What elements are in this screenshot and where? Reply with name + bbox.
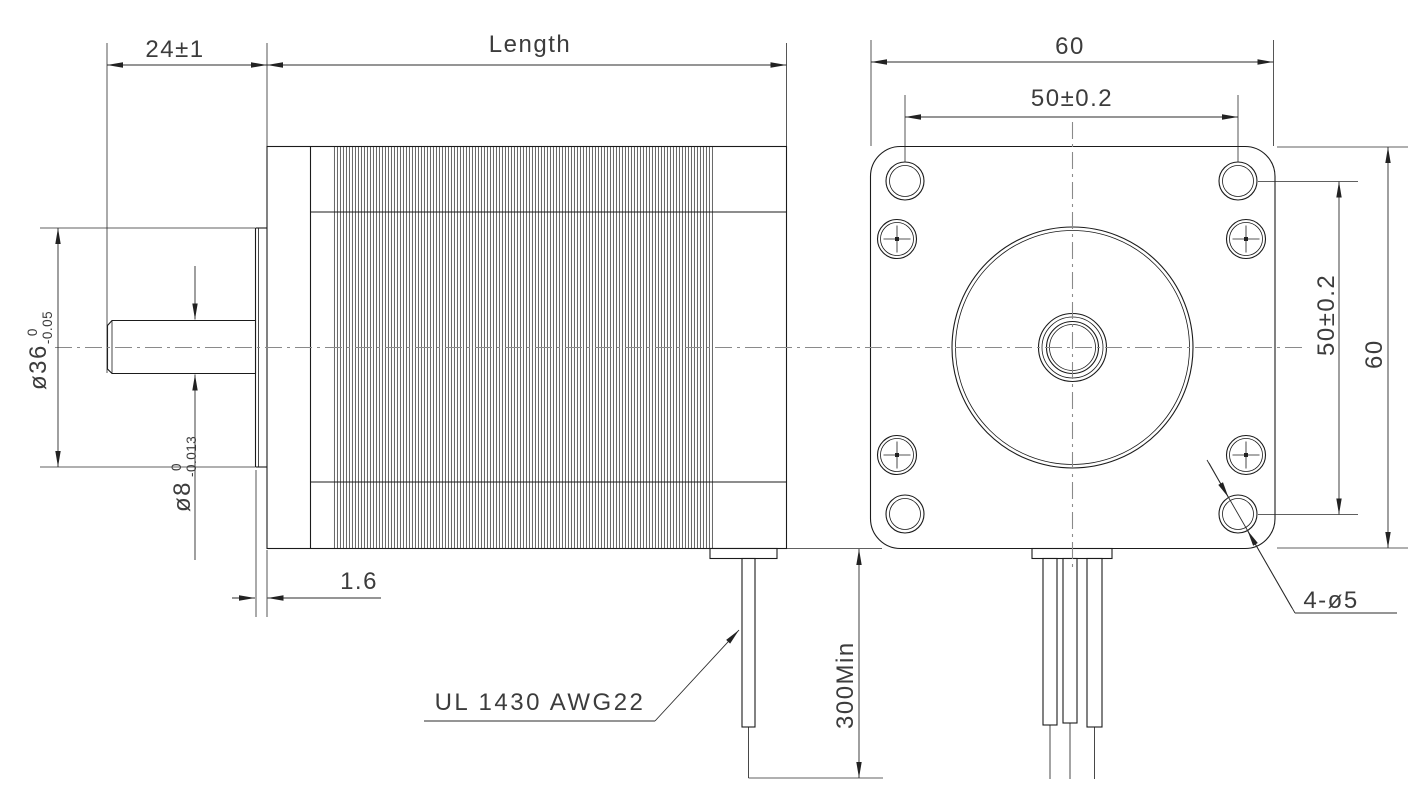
shaft-dia-nominal: ø8	[169, 481, 196, 512]
assembly-screw-top-right	[1227, 220, 1266, 259]
hole-callout-arrow-lower	[1248, 531, 1293, 609]
corner-hole-top-left	[886, 162, 924, 200]
assembly-screw-bottom-right	[1227, 436, 1266, 475]
cable-bushing-side	[710, 549, 777, 559]
side-view	[108, 147, 787, 779]
lead-wire-1	[1043, 559, 1057, 726]
label-height-right: 60	[1361, 339, 1388, 369]
label-hole-spacing-top: 50±0.2	[1031, 85, 1113, 112]
boss-dia-lower-tol: -0.05	[40, 311, 55, 344]
label-boss-depth: 1.6	[340, 568, 378, 595]
lead-wire-3	[1087, 559, 1102, 728]
label-shaft-diameter: ø80-0.013	[169, 436, 199, 512]
label-boss-diameter: ø360-0.05	[25, 311, 55, 390]
label-shaft-extension: 24±1	[145, 36, 204, 63]
label-wire-spec: UL 1430 AWG22	[435, 689, 646, 716]
motor-dimension-drawing: 24±1 Length ø360-0.05 ø80-0.013 1.6 UL 1…	[0, 0, 1421, 789]
lead-wire-side	[742, 559, 755, 728]
label-lead-length: 300Min	[832, 641, 859, 729]
corner-hole-bottom-left	[886, 495, 924, 533]
boss-dia-nominal: ø36	[25, 344, 52, 390]
shaft-dia-upper-tol: 0	[169, 463, 184, 471]
lead-wire-2	[1063, 559, 1077, 724]
shaft-dia-lower-tol: -0.013	[184, 436, 199, 477]
label-body-length: Length	[489, 31, 571, 58]
label-width-top: 60	[1055, 33, 1085, 60]
corner-hole-top-right	[1219, 162, 1257, 200]
wire-spec-leader	[655, 630, 739, 721]
boss-dia-upper-tol: 0	[25, 328, 40, 336]
assembly-screw-top-left	[878, 220, 917, 259]
label-mounting-holes: 4-ø5	[1303, 587, 1358, 614]
assembly-screw-bottom-left	[878, 436, 917, 475]
label-hole-spacing-right: 50±0.2	[1313, 274, 1340, 356]
